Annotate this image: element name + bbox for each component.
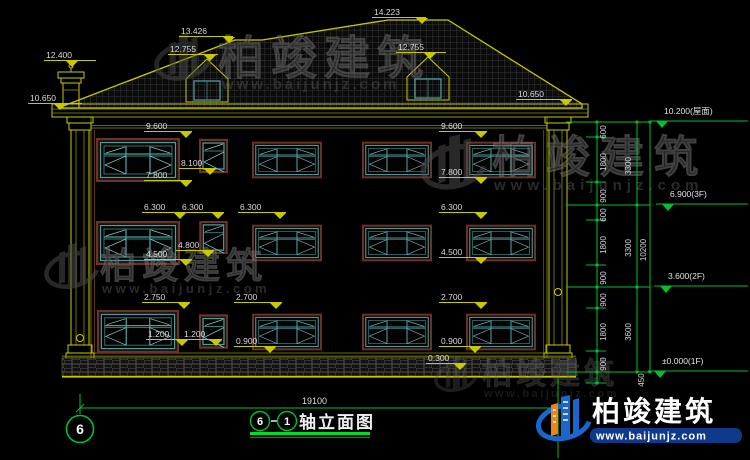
- window: [200, 140, 227, 172]
- dim-f3-sill-right: 7.800: [441, 167, 463, 177]
- chain-subtotal: 3300: [624, 157, 633, 175]
- brand-logo: 柏竣建筑 www.baijunjz.com: [535, 395, 742, 444]
- level-3f: 6.900(3F): [670, 189, 707, 199]
- chain-seg: 1800: [599, 153, 608, 171]
- dim-f3-sill-left: 7.800: [146, 170, 168, 180]
- chain-seg: 1800: [599, 236, 608, 254]
- dim-f3-top-right: 9.600: [441, 121, 463, 131]
- watermark-text: 柏竣建筑: [482, 357, 618, 391]
- chain-total: 10200: [639, 238, 648, 261]
- level-roof: 10.200(屋面): [664, 106, 713, 116]
- elevation-drawing: 柏竣建筑 www.baijunjz.com 柏竣建筑 www.baijunjz.…: [0, 0, 750, 460]
- dim-dormer-right: 12.755: [398, 42, 424, 52]
- drawing-title: 轴立面图: [299, 412, 375, 432]
- title-axis-a: 6: [257, 416, 263, 428]
- dim-f1-top-mid: 2.700: [236, 292, 258, 302]
- chain-seg: 600: [599, 208, 608, 222]
- title-axis-b: 1: [284, 416, 290, 428]
- dim-left-ridge: 13.426: [181, 26, 207, 36]
- dim-eave-right: 10.650: [518, 89, 544, 99]
- watermark-text: 柏竣建筑: [100, 245, 268, 286]
- chain-seg: 900: [599, 189, 608, 203]
- dim-f2-top-3: 6.300: [240, 202, 262, 212]
- level-1f: ±0.000(1F): [662, 356, 704, 366]
- column-left: [66, 117, 94, 358]
- level-2f: 3.600(2F): [668, 271, 705, 281]
- chain-below: 450: [637, 373, 646, 387]
- chain-seg: 900: [599, 271, 608, 285]
- dim-dormer-left: 12.755: [170, 44, 196, 54]
- dim-f1-sill-mid: 0.900: [236, 336, 258, 346]
- watermark-right: 柏竣建筑 www.baijunjz.com: [419, 133, 708, 194]
- window: [363, 315, 431, 350]
- brand-url: www.baijunjz.com: [595, 431, 707, 443]
- dim-f1-sill-right: 0.900: [441, 336, 463, 346]
- dim-eave-left: 10.650: [30, 93, 56, 103]
- chain-seg: 600: [599, 125, 608, 139]
- dim-chimney: 12.400: [46, 50, 72, 60]
- dim-f1-sill-a: 1.200: [148, 329, 170, 339]
- dim-f1-top-left: 2.750: [144, 292, 166, 302]
- dim-f1-top-right: 2.700: [441, 292, 463, 302]
- dim-f2-top-2: 6.300: [182, 202, 204, 212]
- cad-canvas: 柏竣建筑 www.baijunjz.com 柏竣建筑 www.baijunjz.…: [0, 0, 750, 460]
- chain-subtotal: 3600: [624, 323, 633, 341]
- chain-subtotal: 3300: [624, 239, 633, 257]
- dim-plinth-top: 0.300: [428, 353, 450, 363]
- brand-logo-icon: [535, 395, 593, 444]
- dim-f1-sill-b: 1.200: [184, 329, 206, 339]
- window: [467, 226, 535, 261]
- dim-f2-sill-right: 4.500: [441, 247, 463, 257]
- chain-seg: 900: [599, 293, 608, 307]
- dim-f2-top-1: 6.300: [144, 202, 166, 212]
- window: [253, 143, 321, 178]
- watermark-url: www.baijunjz.com: [221, 76, 399, 93]
- dim-ridge: 14.223: [374, 7, 400, 17]
- watermark-logo-icon: [43, 243, 101, 292]
- chain-seg: 1800: [599, 323, 608, 341]
- axis-bubble-label: 6: [76, 421, 84, 437]
- window: [467, 315, 535, 350]
- axis-bubble: 6: [67, 416, 94, 443]
- dim-f3-top-left: 9.600: [146, 121, 168, 131]
- brand-name: 柏竣建筑: [592, 395, 716, 427]
- dim-f2-sill-left: 4.500: [146, 249, 168, 259]
- window: [363, 226, 431, 261]
- drawing-title-block: 6 1 轴立面图: [250, 412, 375, 438]
- dim-total-width: 19100: [302, 396, 327, 406]
- title-underline: [250, 432, 370, 435]
- dim-f3-small-top: 8.100: [181, 158, 203, 168]
- watermark-bottom: 柏竣建筑 www.baijunjz.com: [433, 356, 619, 400]
- chain-seg: 900: [599, 357, 608, 371]
- dim-f2-small-sill: 4.800: [178, 240, 200, 250]
- dim-f2-top-right: 6.300: [441, 202, 463, 212]
- window: [253, 315, 321, 350]
